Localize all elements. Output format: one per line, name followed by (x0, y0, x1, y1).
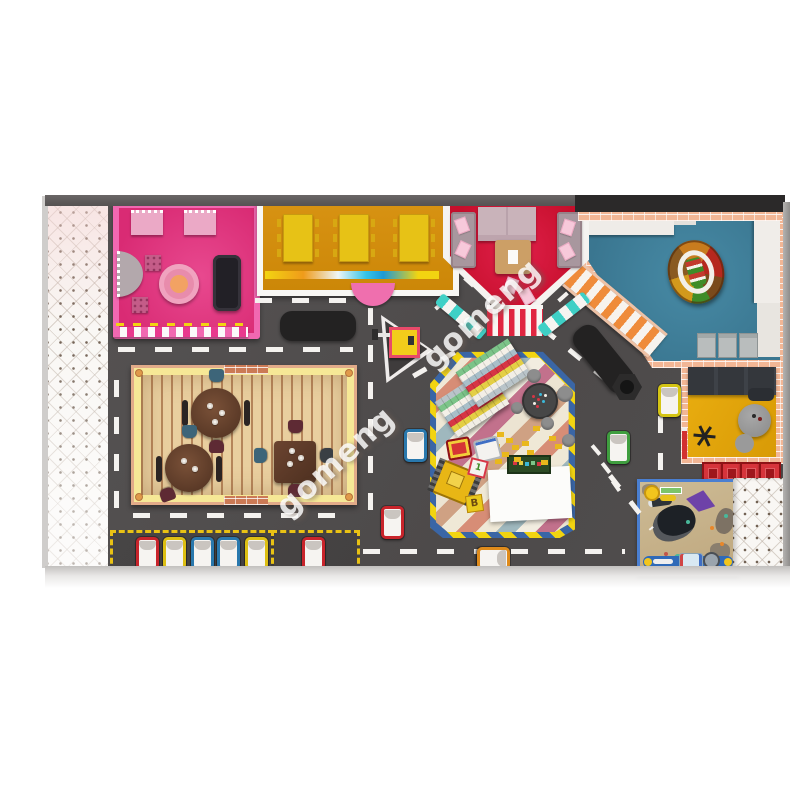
cup (298, 455, 304, 461)
cup (289, 448, 295, 454)
soft-mat-left-tint (48, 200, 108, 568)
cafe-corner-screw (345, 369, 353, 377)
dining-table (399, 214, 429, 262)
play-mat-white (488, 466, 573, 522)
toddler-room-bottom-dashes (116, 323, 246, 326)
gray-chair (718, 333, 737, 358)
stepping-pad (527, 369, 541, 383)
cafe-chair-side (182, 400, 188, 426)
stepping-pad (557, 386, 573, 402)
top-wall-dark (575, 195, 785, 212)
cup (192, 466, 198, 472)
cafe-doormat-bottom (224, 496, 268, 505)
lane-marking (118, 347, 353, 352)
toy-car (658, 384, 681, 417)
toddler-round-table-top (170, 275, 188, 293)
bear-beanbag (738, 404, 771, 437)
cafe-chair-blue (182, 425, 197, 438)
toddler-table (131, 210, 163, 235)
game-coin-icon (644, 485, 660, 501)
block-tray (507, 455, 551, 474)
planter-center (620, 380, 634, 394)
cup (219, 410, 225, 416)
lane-marking (133, 513, 355, 518)
toddler-sofa (213, 255, 241, 311)
shelf-right-lower (757, 303, 780, 357)
cafe-corner-screw (135, 369, 143, 377)
cup (212, 419, 218, 425)
cafe-doormat-top (224, 365, 268, 374)
cafe-chair-maroon (288, 420, 303, 433)
letter-block: B (465, 494, 484, 513)
toddler-table (184, 210, 216, 235)
tray-blocks (513, 461, 517, 465)
cafe-chair-side (216, 456, 222, 482)
game-score-pill (660, 495, 676, 501)
cafe-chair-side (244, 400, 250, 426)
game-coin-right (724, 558, 732, 566)
lane-marking (114, 373, 119, 508)
toy-car (381, 506, 404, 539)
dining-table (339, 214, 369, 262)
game-orca (648, 500, 700, 546)
cafe-corner-screw (345, 493, 353, 501)
excavator-cab (446, 471, 465, 490)
game-coin-left (644, 558, 652, 566)
toddler-room-candy-wall (113, 327, 248, 337)
shelf-right-upper (754, 213, 780, 303)
gas-pump-nozzle (372, 329, 378, 340)
gray-chair (739, 333, 758, 358)
gray-chair (697, 333, 716, 358)
stepping-pad (562, 434, 575, 447)
party-sofa (478, 207, 536, 241)
toy-gas-pump (389, 327, 420, 358)
soft-mat-corner (733, 478, 784, 568)
cafe-chair-blue (254, 448, 267, 463)
cafe-round-table (165, 444, 213, 492)
lane-marking (255, 298, 355, 303)
cafe-chair-maroon (209, 440, 224, 453)
top-wall-brick (578, 212, 782, 221)
toddler-cube-stool (145, 255, 161, 271)
stepping-pad (541, 417, 554, 430)
dining-table (283, 214, 313, 262)
toy-car (404, 429, 427, 462)
street-bench (280, 311, 356, 341)
bear-beanbag-head (735, 434, 754, 453)
floor-skirt (45, 566, 790, 588)
playground-floorplan: 1 B gomeng g (0, 0, 800, 800)
cafe-chair-side (156, 456, 162, 482)
gas-pump-hose (377, 333, 390, 337)
cafe-corner-screw (135, 493, 143, 501)
bear-beanbag-eye (752, 414, 756, 418)
cup (181, 458, 187, 464)
lounge-sofa-bolster (748, 388, 774, 401)
toddler-cube-stool (132, 297, 148, 313)
toy-car-red (445, 436, 472, 461)
toy-car (607, 431, 630, 464)
game-slider (653, 559, 673, 564)
top-wall (45, 195, 578, 206)
gas-pump-display (408, 336, 414, 345)
toddler-round-table (159, 264, 199, 304)
scattered-blocks (497, 432, 504, 437)
confetti (537, 398, 540, 401)
cup (287, 461, 293, 467)
dining-room-rainbow-trim (265, 271, 439, 279)
right-wall (783, 202, 790, 568)
game-health-bar (660, 487, 682, 494)
cafe-chair-blue (209, 369, 224, 382)
stepping-pad (511, 402, 523, 414)
cup (207, 403, 213, 409)
confetti-table (522, 383, 558, 419)
cafe-round-table (191, 388, 241, 438)
fire-extinguisher (682, 428, 687, 459)
